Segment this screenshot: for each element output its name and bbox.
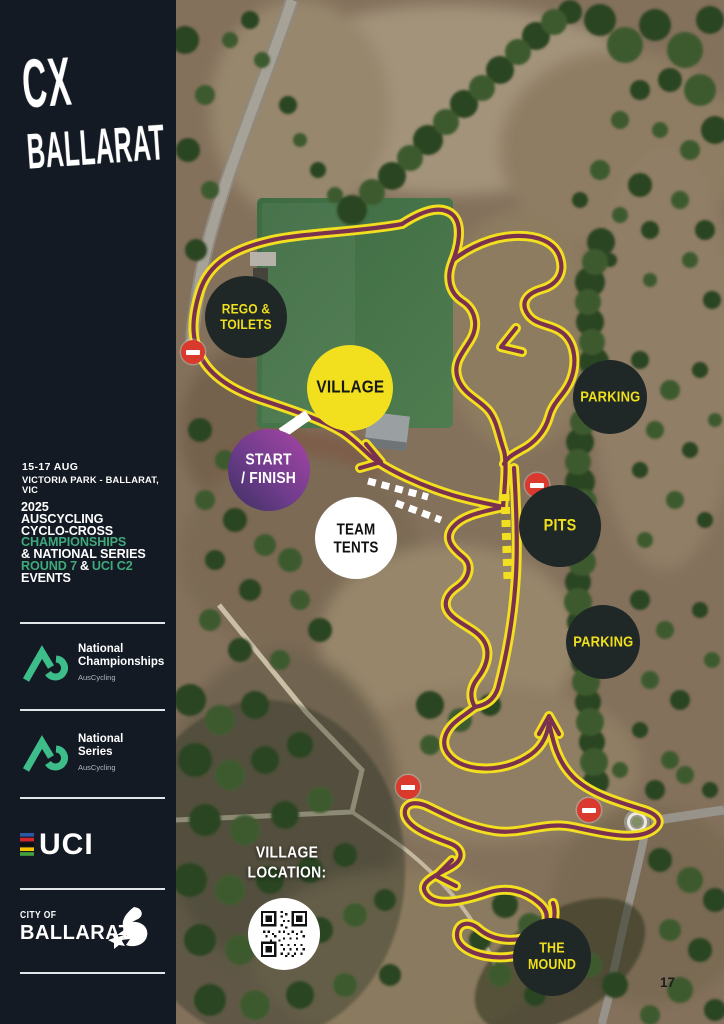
title-line: EVENTS [21, 572, 146, 584]
uci-logo: UCI [20, 830, 94, 860]
event-logo-top: CX [20, 49, 74, 120]
divider [20, 888, 165, 890]
divider [20, 709, 165, 711]
partner-sub: AusCycling [78, 671, 164, 684]
partner-sub: AusCycling [78, 761, 123, 774]
title-segment: UCI C2 [92, 558, 133, 573]
badge-start-finish-label: START / FINISH [242, 452, 297, 489]
auscycling-logo-icon [22, 643, 68, 683]
partner-national-championships: National Championships AusCycling [22, 643, 164, 684]
uci-stripes-icon [20, 833, 37, 857]
no-entry-icon [181, 340, 205, 364]
event-dates: 15-17 AUG [22, 461, 176, 473]
partner-line: Championships [78, 656, 164, 669]
badge-village: VILLAGE [307, 345, 393, 431]
badge-parking-north: PARKING [573, 360, 647, 434]
qr-code-pattern [261, 911, 307, 957]
ballarat-swan-icon [104, 905, 150, 953]
badge-rego-toilets: REGO & TOILETS [205, 276, 287, 358]
divider [20, 972, 165, 974]
badge-parking-south: PARKING [566, 605, 640, 679]
page-number: 17 [660, 975, 700, 990]
partner-text: National Series AusCycling [78, 733, 123, 774]
no-entry-icon [577, 798, 601, 822]
partner-national-series: National Series AusCycling [22, 733, 123, 774]
title-segment: & [80, 558, 89, 573]
badge-the-mound-label: THE MOUND [515, 941, 590, 974]
no-entry-icon [396, 775, 420, 799]
badge-rego-toilets-label: REGO & TOILETS [220, 301, 272, 333]
badge-the-mound: THE MOUND [513, 918, 591, 996]
divider [20, 622, 165, 624]
badge-parking-north-label: PARKING [580, 388, 640, 405]
event-venue: VICTORIA PARK - BALLARAT, VIC [22, 475, 176, 495]
badge-team-tents: TEAM TENTS [315, 497, 397, 579]
badge-pits: PITS [519, 485, 601, 567]
sidebar: CX BALLARAT 15-17 AUG VICTORIA PARK - BA… [0, 0, 176, 1024]
village-location-label: VILLAGE LOCATION: [215, 843, 359, 883]
badge-pits-label: PITS [544, 517, 577, 536]
event-logo: CX BALLARAT [20, 33, 294, 175]
partner-line: National [78, 733, 123, 746]
partner-text: National Championships AusCycling [78, 643, 164, 684]
uci-label: UCI [39, 830, 94, 860]
event-details: 15-17 AUG VICTORIA PARK - BALLARAT, VIC [22, 461, 176, 495]
partner-line: Series [78, 746, 123, 759]
poster-page: REGO & TOILETS VILLAGE START / FINISH TE… [0, 0, 724, 1024]
event-title: 2025 AUSCYCLING CYCLO-CROSS CHAMPIONSHIP… [21, 501, 146, 584]
divider [20, 797, 165, 799]
badge-village-label: VILLAGE [316, 378, 384, 398]
badge-team-tents-label: TEAM TENTS [317, 520, 396, 555]
qr-code [248, 898, 320, 970]
badge-parking-south-label: PARKING [573, 633, 633, 650]
badge-start-finish: START / FINISH [228, 429, 310, 511]
auscycling-logo-icon [22, 733, 68, 773]
event-logo-bottom: BALLARAT [25, 118, 166, 178]
partner-line: National [78, 643, 164, 656]
city-of-label: CITY OF [20, 910, 115, 921]
